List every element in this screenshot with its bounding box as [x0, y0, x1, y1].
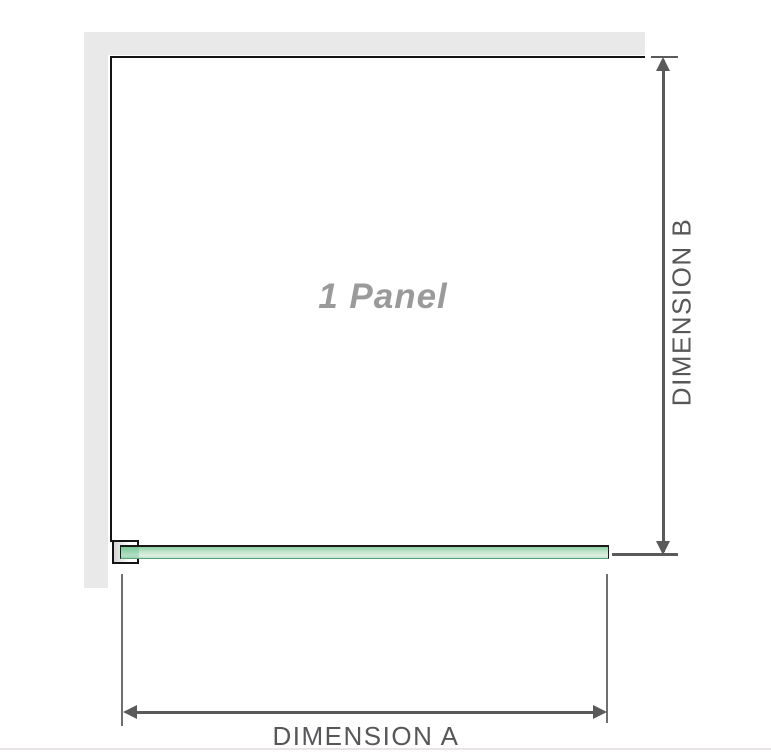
arrow-up-icon	[656, 57, 670, 71]
wall-left-strip	[84, 32, 108, 588]
arrow-left-icon	[123, 705, 137, 719]
dimension-a-line	[134, 711, 596, 714]
dimension-a-extension-right	[606, 574, 608, 723]
dimension-b-line	[662, 60, 665, 552]
panel-outline-top	[110, 56, 645, 58]
arrow-down-icon	[656, 541, 670, 555]
arrow-right-icon	[593, 705, 607, 719]
dimension-a-extension-left	[121, 574, 123, 726]
wall-top-strip	[84, 32, 645, 55]
panel-dimension-diagram: 1 Panel DIMENSION B DIMENSION A	[0, 0, 771, 755]
panel-caption: 1 Panel	[318, 277, 448, 317]
glass-panel-bar	[120, 545, 609, 559]
image-bottom-rule	[0, 748, 771, 750]
panel-outline-left	[110, 56, 112, 542]
glass-panel-bar-end	[121, 547, 139, 558]
dimension-b-label: DIMENSION B	[667, 218, 698, 406]
